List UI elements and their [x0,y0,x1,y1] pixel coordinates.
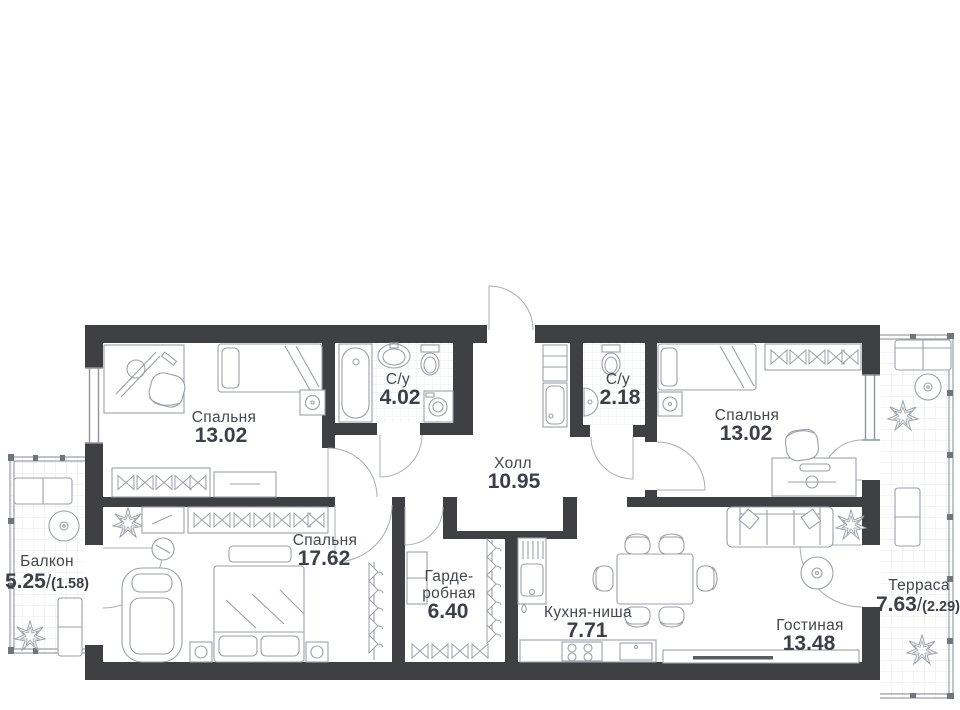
coffee-table [801,557,833,589]
terrace-sofa [895,340,951,370]
door-bedroom-left [328,448,377,497]
label-wardrobe-name-1: Гарде- [424,568,473,585]
hall-cabinet [543,345,567,427]
single-bed [658,344,756,390]
room-hall [543,345,567,427]
washing-machine [424,391,453,422]
vanity-table [142,507,184,560]
floor-plan: Спальня 13.02 С/у 4.02 Холл 10.95 С/у 2.… [0,0,960,710]
label-hall-area: 10.95 [488,470,541,493]
lounge-chair [122,568,182,662]
label-bedroom-master-area: 17.62 [298,547,351,570]
window-bedroom-right [862,375,880,440]
desk [772,458,856,496]
water-drop-icon [522,604,527,613]
balcony-sofa [14,478,72,504]
single-bed [218,344,322,392]
nightstand [658,392,682,416]
terrace-table [915,374,941,400]
nightstand [300,390,325,415]
bathtub [339,344,372,422]
dining-table [617,554,693,604]
nightstand [306,642,328,662]
oven [620,643,652,660]
label-terrace-name: Терраса [888,577,950,594]
nightstand [190,642,212,662]
plant [836,510,866,539]
label-living-area: 13.48 [783,632,836,655]
room-kitchen [518,534,717,662]
open-hanger-rail [369,562,383,660]
door-bathroom-main [380,435,422,477]
sofa [727,507,833,547]
label-kitchen-area: 7.71 [567,619,608,642]
sink-counter [518,538,546,604]
balcony-bench [58,598,82,656]
label-bedroom-right-area: 13.02 [720,422,773,445]
window-bedroom-left [85,368,103,443]
label-bathroom-main-area: 4.02 [380,386,421,409]
wardrobe [765,344,861,370]
entrance-door [489,286,533,330]
balcony-table [49,511,79,541]
label-bedroom-left-area: 13.02 [195,424,248,447]
room-bedroom-master [113,507,383,662]
door-bathroom-guest [591,437,633,479]
cooktop [562,642,602,661]
plant [113,508,143,537]
label-wardrobe-area: 6.40 [428,600,469,623]
terrace-bench [895,488,920,546]
label-balcony-name: Балкон [20,553,74,570]
toilet [421,345,439,375]
walls [85,325,880,680]
shoe-rack [412,644,488,658]
double-bed [214,546,304,662]
wardrobe [188,507,328,533]
door-bedroom-right [657,442,705,490]
dresser [214,472,276,497]
hanger-rail [487,539,501,643]
label-bathroom-guest-area: 2.18 [600,386,641,409]
desk-chair [784,428,820,462]
door-wardrobe-room [405,507,443,545]
wardrobe [112,468,210,497]
